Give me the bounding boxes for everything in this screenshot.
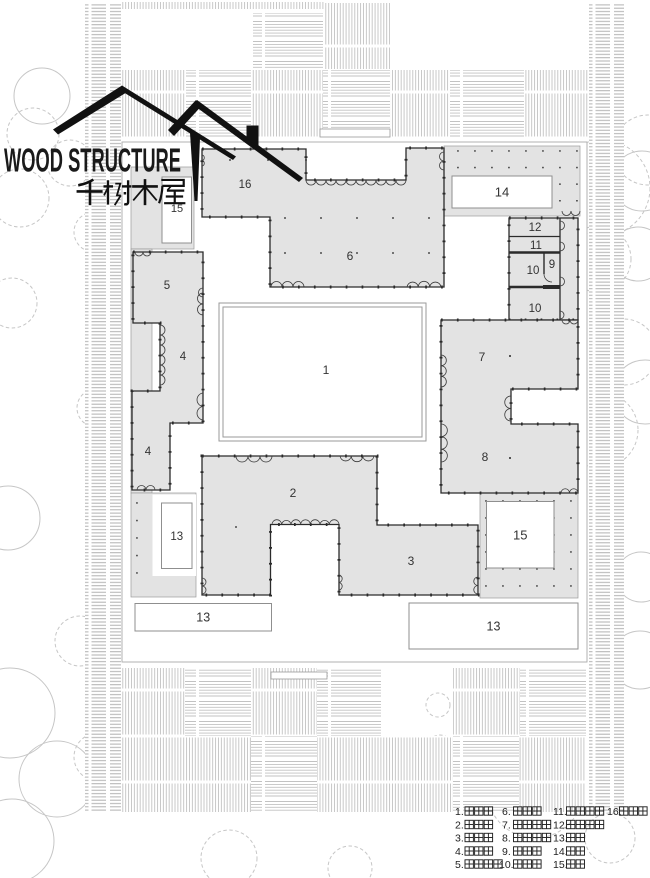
svg-text:11.: 11. [553,806,567,818]
svg-text:15.: 15. [553,859,568,871]
svg-text:10: 10 [527,265,540,277]
svg-text:2: 2 [290,486,297,500]
svg-text:14.: 14. [553,846,568,858]
svg-text:WOOD STRUCTURE: WOOD STRUCTURE [4,142,181,179]
svg-text:15: 15 [171,203,183,215]
svg-text:8: 8 [482,450,489,464]
svg-text:3: 3 [408,554,415,568]
svg-text:5.: 5. [455,859,464,871]
svg-text:3.: 3. [455,833,464,845]
svg-text:9: 9 [549,259,555,271]
svg-text:8.: 8. [502,833,511,845]
svg-text:11: 11 [530,240,542,252]
svg-text:2.: 2. [455,820,464,832]
svg-text:13.: 13. [553,833,568,845]
svg-text:13: 13 [487,619,501,633]
svg-text:14: 14 [495,185,509,200]
svg-text:12.: 12. [553,820,568,832]
svg-text:13: 13 [196,611,210,625]
svg-text:16: 16 [239,179,252,191]
svg-text:13: 13 [170,531,183,543]
svg-text:7.: 7. [502,820,511,832]
svg-text:10: 10 [529,303,542,315]
svg-text:12: 12 [529,222,542,234]
svg-text:6.: 6. [502,806,511,818]
svg-text:9.: 9. [502,846,511,858]
svg-text:4.: 4. [455,846,464,858]
svg-text:5: 5 [164,280,170,292]
svg-text:4: 4 [145,446,152,458]
svg-text:4: 4 [180,351,187,363]
svg-text:6: 6 [347,249,354,263]
svg-text:7: 7 [479,350,486,364]
svg-text:1.: 1. [455,806,464,818]
svg-text:15: 15 [513,527,527,542]
svg-text:1: 1 [323,363,330,377]
svg-text:10.: 10. [499,859,514,871]
